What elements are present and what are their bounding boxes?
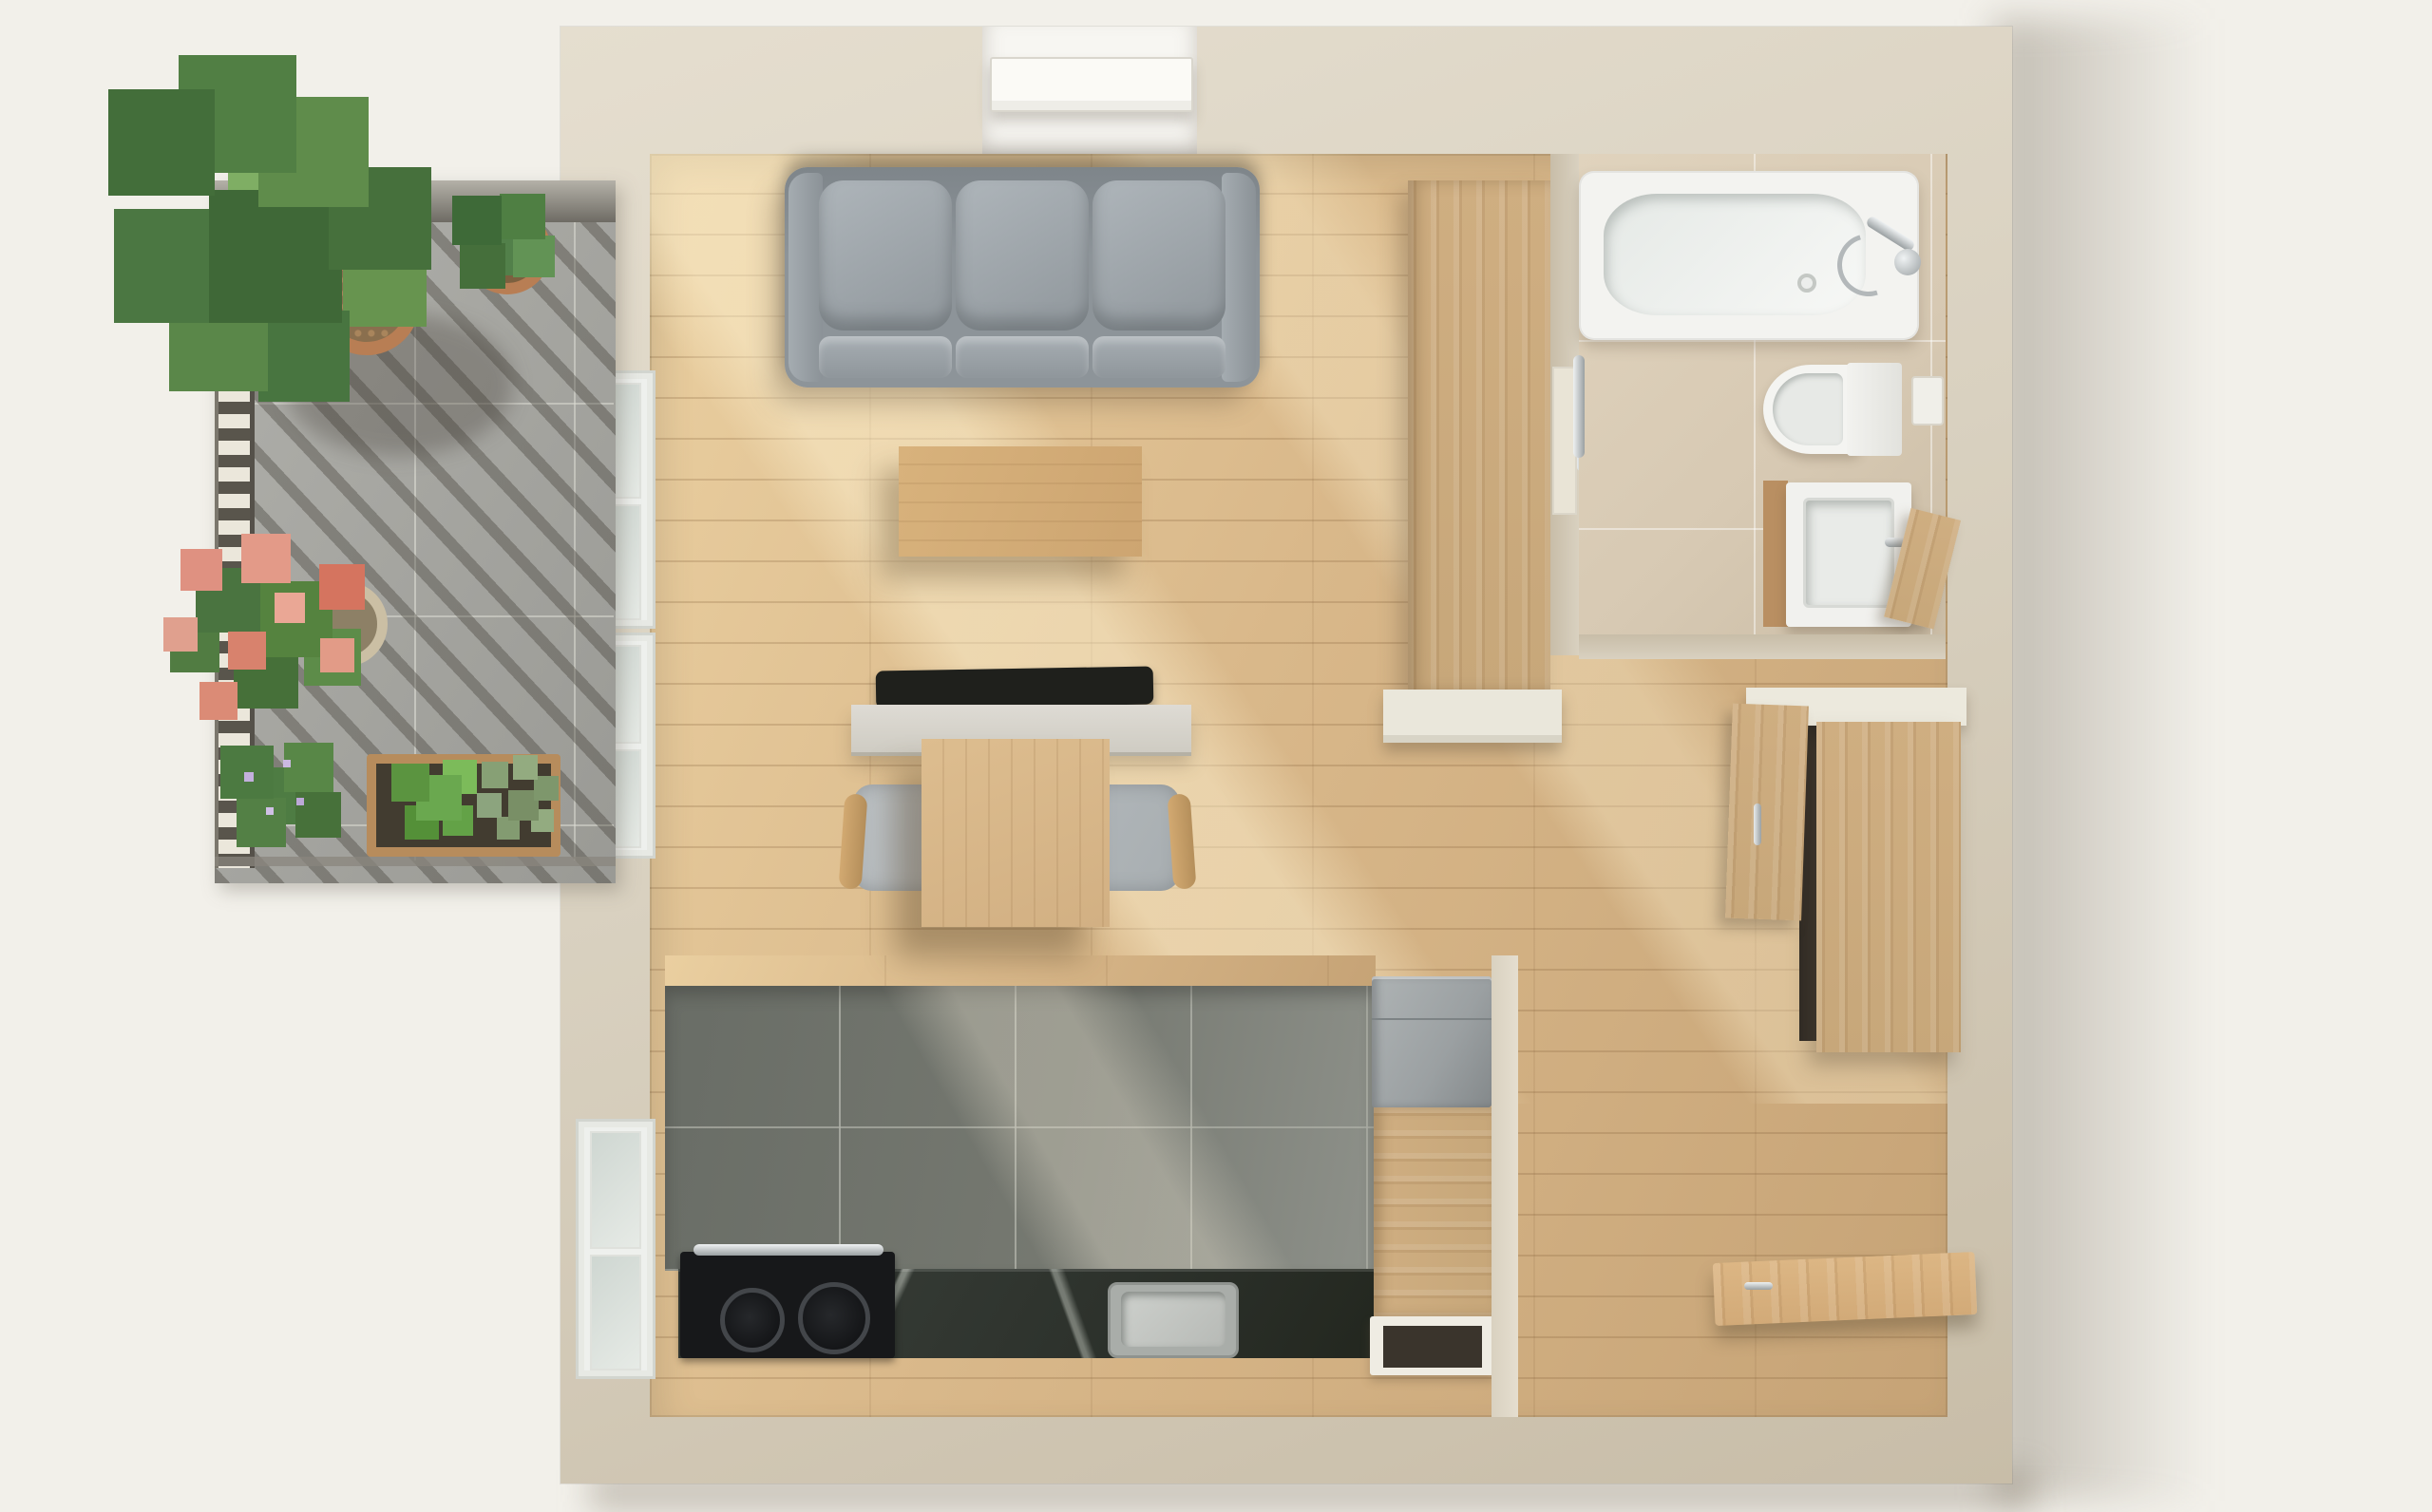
sofa-back-cushion	[956, 180, 1089, 331]
kitchen-tile-floor	[665, 986, 1376, 1271]
recess-door-leaf	[990, 57, 1193, 112]
balcony-grout	[574, 222, 576, 860]
balcony-railing	[215, 255, 255, 868]
sofa-seat-cushion	[819, 336, 952, 378]
flush-plate	[1911, 376, 1944, 425]
stone-pot	[302, 581, 388, 667]
dining-table	[921, 739, 1110, 927]
wardrobe-base-shelf	[1383, 690, 1562, 743]
hall-cabinet-open-door	[1725, 704, 1809, 921]
kitchen-cubby	[1370, 1316, 1495, 1375]
kitchen-hall-wall	[1491, 955, 1518, 1417]
bathtub-drain	[1797, 274, 1816, 293]
balcony-grout	[217, 615, 614, 617]
bathroom-bottom-wall	[1579, 634, 1946, 659]
kitchen-cubby-opening	[1383, 1326, 1482, 1368]
bath-faucet	[1894, 249, 1921, 275]
sofa-back-cushion	[819, 180, 952, 331]
terracotta-pot-small	[464, 207, 551, 294]
oven-handle	[693, 1244, 883, 1256]
building-shadow-right	[1993, 19, 2278, 1501]
herb-planter-box	[367, 754, 560, 857]
floor-plan-scene	[0, 0, 2432, 1512]
pergola-beam	[215, 180, 616, 222]
kitchen-threshold	[665, 955, 1376, 988]
toilet-cistern	[1847, 363, 1902, 456]
hall-cabinet-handle	[1754, 803, 1761, 845]
hall-cabinet	[1816, 722, 1961, 1052]
fridge	[1372, 976, 1491, 1107]
sofa-seat-cushion	[956, 336, 1089, 378]
terracotta-pot	[313, 249, 420, 355]
window-pane	[590, 1255, 641, 1370]
sofa-armrest-left	[788, 173, 823, 382]
vanity-side-panel	[1763, 481, 1788, 627]
monitor	[876, 666, 1154, 709]
burner-left	[720, 1288, 785, 1352]
entry-door-handle	[1744, 1282, 1773, 1290]
window-pane	[590, 1131, 641, 1249]
balcony-railing-bottom	[215, 857, 616, 866]
kitchen-sink	[1108, 1282, 1239, 1358]
toilet-seat	[1773, 373, 1843, 445]
coffee-table	[899, 446, 1142, 557]
sofa-armrest-right	[1222, 173, 1256, 382]
sofa-seat-cushion	[1092, 336, 1225, 378]
fridge-door-split	[1372, 1018, 1491, 1020]
kitchen-window	[576, 1119, 655, 1379]
kitchen-tall-cabinet	[1374, 1107, 1491, 1316]
towel-bar	[1573, 355, 1585, 458]
vanity-basin	[1803, 498, 1894, 608]
kitchen-sink-basin	[1121, 1292, 1225, 1347]
toilet	[1763, 365, 1860, 454]
wardrobe	[1408, 180, 1550, 693]
sofa-back-cushion	[1092, 180, 1225, 331]
sofa	[785, 167, 1260, 387]
bathtub-basin	[1604, 194, 1866, 315]
burner-right	[798, 1282, 870, 1354]
